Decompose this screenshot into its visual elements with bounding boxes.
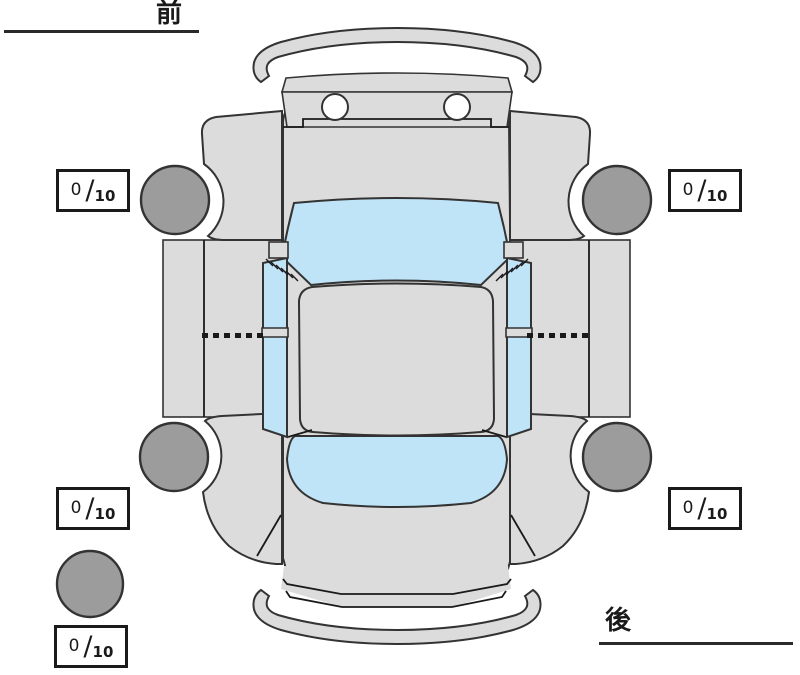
score-max: 10 [95,189,116,204]
score-max: 10 [95,507,116,522]
front-underline [4,30,199,33]
side-window-right [507,258,531,437]
rear-window [287,436,507,507]
score-max: 10 [707,507,728,522]
roof [299,284,494,436]
rear-underline [599,642,793,645]
headlight-panel [282,92,512,127]
fender-front-right [510,111,590,240]
front-label: 前 [156,1,182,28]
cowl-panel [282,73,512,92]
tread-score-rear-left: 0 / 10 [56,487,130,530]
tread-score-front-right: 0 / 10 [668,169,742,212]
vehicle-condition-diagram: 前 後 0 / 10 0 / 10 0 / 10 0 / 10 0 / 10 [0,0,800,675]
windshield [282,198,510,285]
side-window-left [263,258,287,437]
score-value: 0 [683,500,694,517]
score-value: 0 [71,182,82,199]
score-max: 10 [93,645,114,660]
tire-rear-right [583,423,651,491]
spare-tire [57,551,123,617]
tread-score-rear-right: 0 / 10 [668,487,742,530]
mirror-left [269,242,288,258]
rear-label: 後 [605,608,631,635]
mirror-right [504,242,523,258]
score-value: 0 [71,500,82,517]
score-separator: / [697,495,706,522]
score-separator: / [85,495,94,522]
fender-front-left [202,111,282,240]
score-value: 0 [69,638,80,655]
score-value: 0 [683,182,694,199]
trunk-panel [281,566,511,607]
headlight-right [444,94,470,120]
score-separator: / [697,177,706,204]
headlight-left [322,94,348,120]
fender-rear-right [510,413,589,564]
tire-front-right [583,166,651,234]
vehicle-top-view [0,0,800,675]
score-max: 10 [707,189,728,204]
fender-rear-left [203,413,282,564]
score-separator: / [85,177,94,204]
tread-score-front-left: 0 / 10 [56,169,130,212]
score-separator: / [83,633,92,660]
tire-rear-left [140,423,208,491]
tire-front-left [141,166,209,234]
tread-score-spare: 0 / 10 [54,625,128,668]
b-pillar-left [262,328,288,337]
